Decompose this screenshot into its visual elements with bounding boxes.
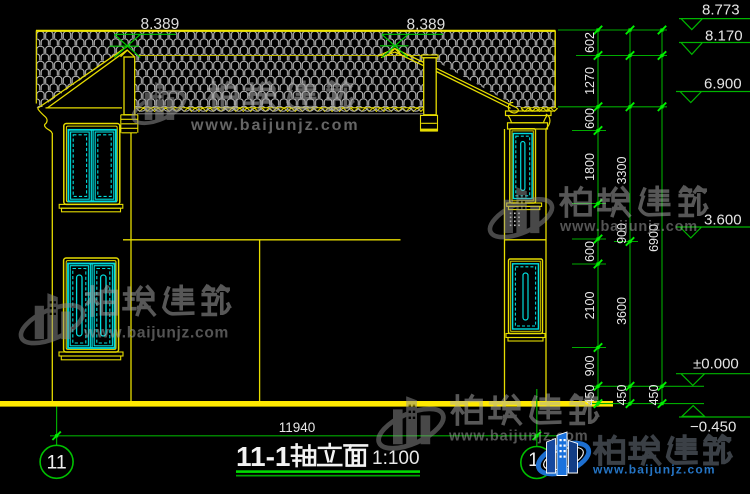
svg-text:3600: 3600 — [615, 297, 629, 325]
svg-text:450: 450 — [647, 385, 661, 406]
svg-text:11: 11 — [46, 452, 66, 474]
svg-text:www.baijunjz.com: www.baijunjz.com — [592, 463, 716, 477]
svg-text:602: 602 — [583, 32, 597, 53]
svg-text:600: 600 — [583, 241, 597, 262]
svg-text:8.389: 8.389 — [141, 16, 180, 33]
svg-text:−0.450: −0.450 — [690, 419, 736, 436]
svg-text:900: 900 — [583, 356, 597, 377]
svg-text:8.170: 8.170 — [705, 28, 743, 45]
svg-text:3.600: 3.600 — [704, 212, 742, 229]
svg-text:www.baijunjz.com: www.baijunjz.com — [190, 117, 360, 134]
svg-text:www.baijunjz.com: www.baijunjz.com — [559, 219, 698, 235]
svg-text:8.773: 8.773 — [702, 2, 740, 19]
svg-text:1800: 1800 — [583, 153, 597, 181]
svg-text:1:100: 1:100 — [372, 448, 420, 469]
svg-text:600: 600 — [583, 108, 597, 129]
svg-text:450: 450 — [615, 385, 629, 406]
svg-text:2100: 2100 — [583, 292, 597, 320]
svg-text:www.baijunjz.com: www.baijunjz.com — [83, 325, 229, 342]
svg-text:3300: 3300 — [615, 157, 629, 185]
svg-text:±0.000: ±0.000 — [693, 356, 739, 373]
svg-text:11940: 11940 — [279, 420, 316, 435]
svg-text:8.389: 8.389 — [407, 17, 446, 34]
svg-text:1270: 1270 — [583, 67, 597, 95]
svg-text:11-1: 11-1 — [236, 441, 291, 472]
svg-text:6.900: 6.900 — [704, 76, 742, 93]
